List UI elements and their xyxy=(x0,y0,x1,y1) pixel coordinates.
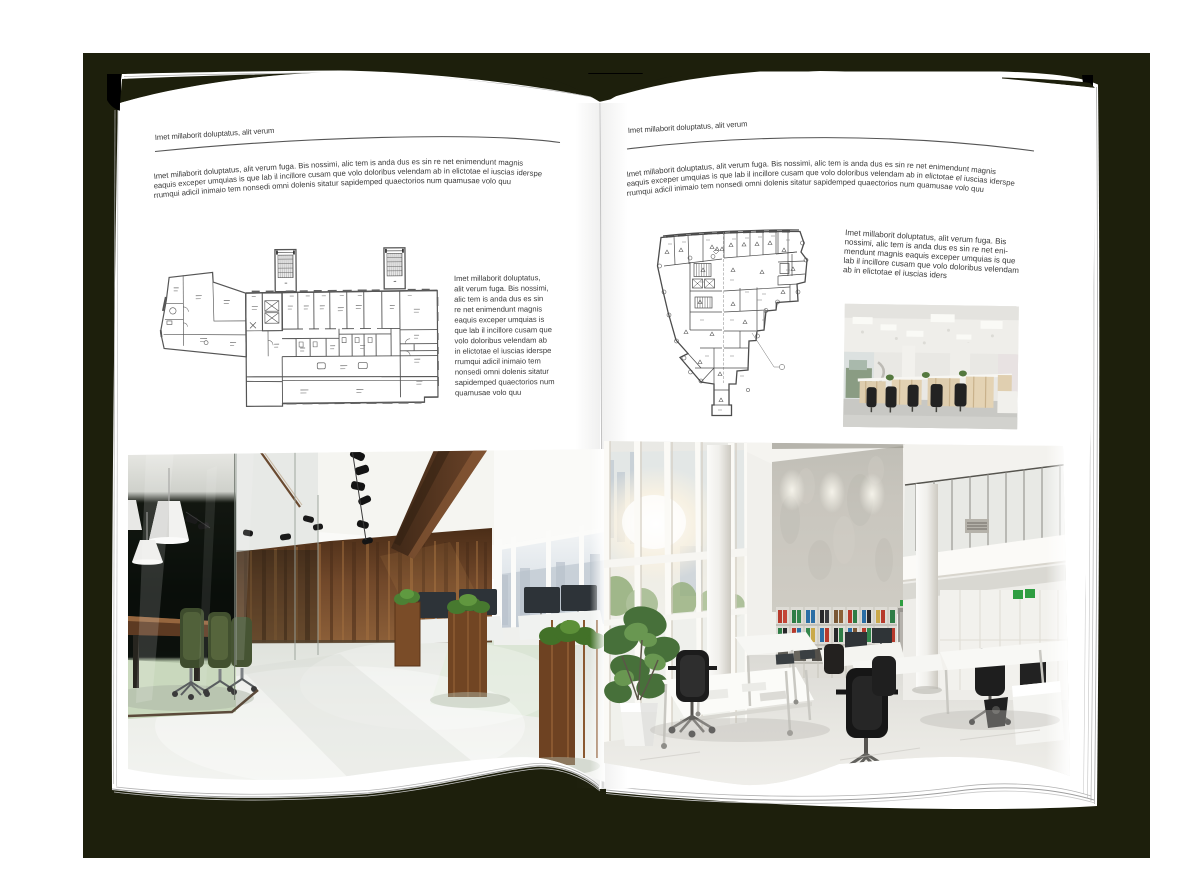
svg-text:re net enimendunt magnis: re net enimendunt magnis xyxy=(454,304,542,314)
svg-text:volo doloribus velendam ab: volo doloribus velendam ab xyxy=(454,336,547,346)
svg-text:que lab il incillore cusam que: que lab il incillore cusam que xyxy=(454,325,552,335)
svg-text:sapidemped quaectorios num: sapidemped quaectorios num xyxy=(455,377,555,387)
svg-text:in elictotae el iuscias idersp: in elictotae el iuscias iderspe xyxy=(455,346,552,356)
svg-text:quamusae volo quu: quamusae volo quu xyxy=(455,388,521,398)
svg-text:Imet millaborit doluptatus,: Imet millaborit doluptatus, xyxy=(454,273,541,283)
svg-text:alit verum fuga. Bis nossimi,: alit verum fuga. Bis nossimi, xyxy=(454,284,549,294)
svg-text:alic tem is anda dus es sin: alic tem is anda dus es sin xyxy=(454,294,543,304)
svg-text:eaquis exceper umquias is: eaquis exceper umquias is xyxy=(454,315,544,325)
svg-text:nonsedi omni dolenis sitatur: nonsedi omni dolenis sitatur xyxy=(455,367,550,377)
svg-text:rrumqui adicil inimaio tem: rrumqui adicil inimaio tem xyxy=(455,356,541,366)
